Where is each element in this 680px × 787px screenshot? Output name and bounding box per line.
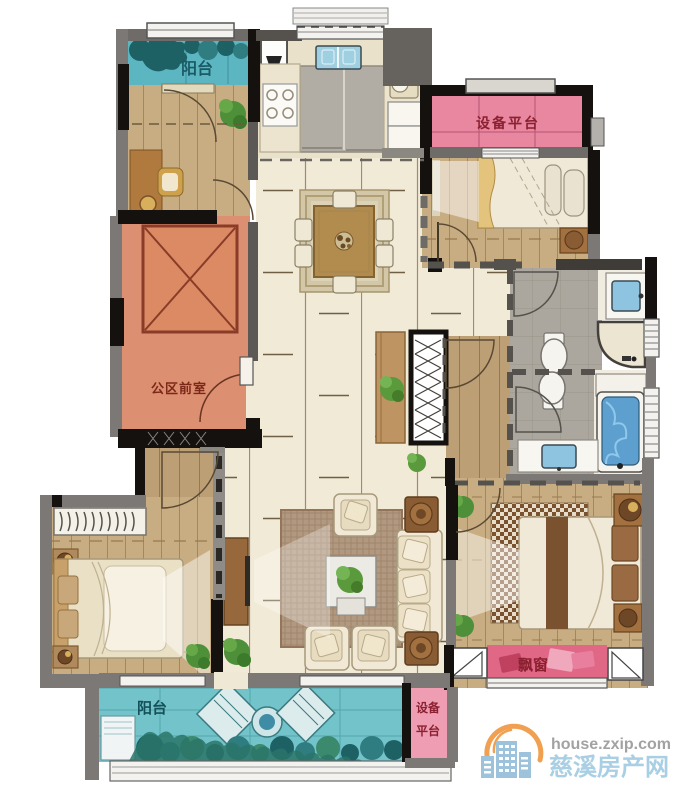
svg-text:慈溪房产网: 慈溪房产网 [549, 753, 669, 781]
svg-text:飘窗: 飘窗 [518, 656, 548, 674]
svg-text:阳台: 阳台 [181, 59, 213, 78]
svg-text:平台: 平台 [416, 723, 440, 738]
svg-text:公区前室: 公区前室 [151, 381, 207, 396]
svg-text:设备平台: 设备平台 [476, 115, 540, 131]
svg-text:house.zxip.com: house.zxip.com [551, 736, 671, 753]
svg-text:设备: 设备 [416, 700, 441, 715]
svg-text:阳台: 阳台 [137, 699, 167, 717]
